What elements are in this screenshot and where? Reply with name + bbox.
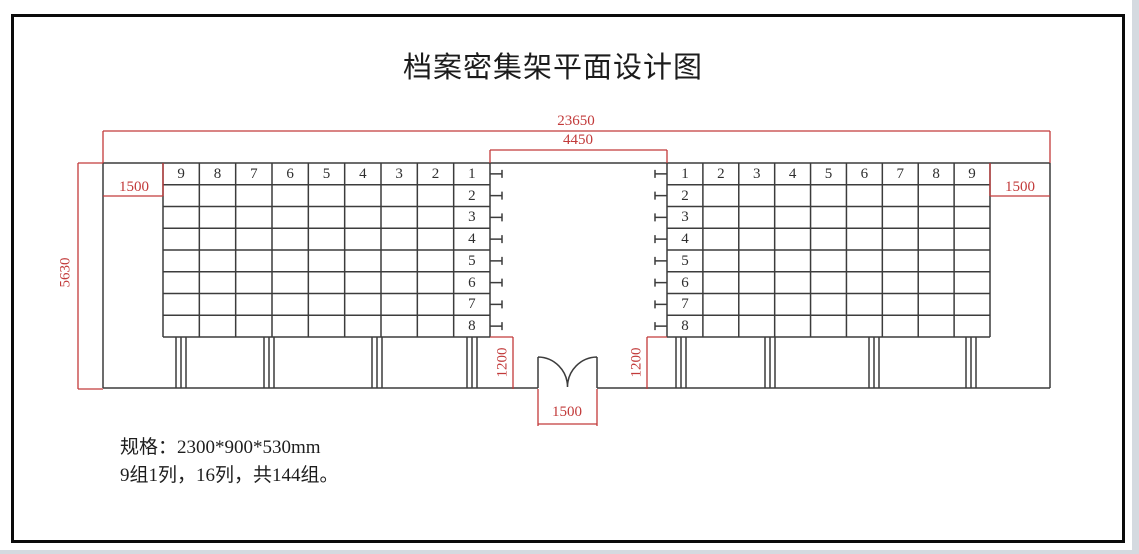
window-edge-bottom [0,550,1139,554]
grid-label: 5 [309,165,345,183]
grid-label: 7 [882,165,918,183]
grid-label: 8 [918,165,954,183]
dim-label-total-width: 23650 [536,114,616,129]
grid-label: 8 [454,317,490,335]
dim-label-side-aisle-left: 1500 [104,180,164,195]
grid-label: 4 [454,230,490,248]
grid-label: 4 [345,165,381,183]
grid-label: 1 [454,165,490,183]
grid-label: 7 [236,165,272,183]
grid-label: 3 [454,208,490,226]
grid-label: 6 [454,274,490,292]
grid-label: 2 [418,165,454,183]
grid-label: 5 [811,165,847,183]
spec-line-size: 规格：2300*900*530mm [120,434,339,462]
dim-label-center-aisle: 4450 [548,133,608,148]
grid-label: 6 [846,165,882,183]
grid-label: 1 [667,165,703,183]
dim-label-side-aisle-right: 1500 [990,180,1050,195]
grid-label: 6 [272,165,308,183]
grid-label: 4 [775,165,811,183]
grid-label: 9 [163,165,199,183]
grid-label: 8 [200,165,236,183]
floor-plan-canvas: 档案密集架平面设计图 98765432123456781234567892345… [0,0,1139,554]
dim-label-front-gap-right: 1200 [630,333,645,393]
grid-label: 3 [381,165,417,183]
dim-label-door-width: 1500 [537,405,597,420]
grid-label: 4 [667,230,703,248]
grid-label: 7 [454,295,490,313]
grid-label: 8 [667,317,703,335]
grid-label: 2 [667,187,703,205]
grid-label: 5 [667,252,703,270]
dim-label-room-depth: 5630 [59,243,74,303]
window-edge-right [1132,0,1139,554]
grid-label: 2 [703,165,739,183]
grid-label: 5 [454,252,490,270]
spec-line-count: 9组1列，16列，共144组。 [120,462,339,490]
plan-lines-dark [103,163,1050,388]
grid-label: 2 [454,187,490,205]
grid-label: 3 [739,165,775,183]
grid-label: 7 [667,295,703,313]
spec-notes: 规格：2300*900*530mm 9组1列，16列，共144组。 [120,434,339,490]
grid-label: 6 [667,274,703,292]
grid-label: 3 [667,208,703,226]
dim-label-front-gap-left: 1200 [496,333,511,393]
grid-label: 9 [954,165,990,183]
